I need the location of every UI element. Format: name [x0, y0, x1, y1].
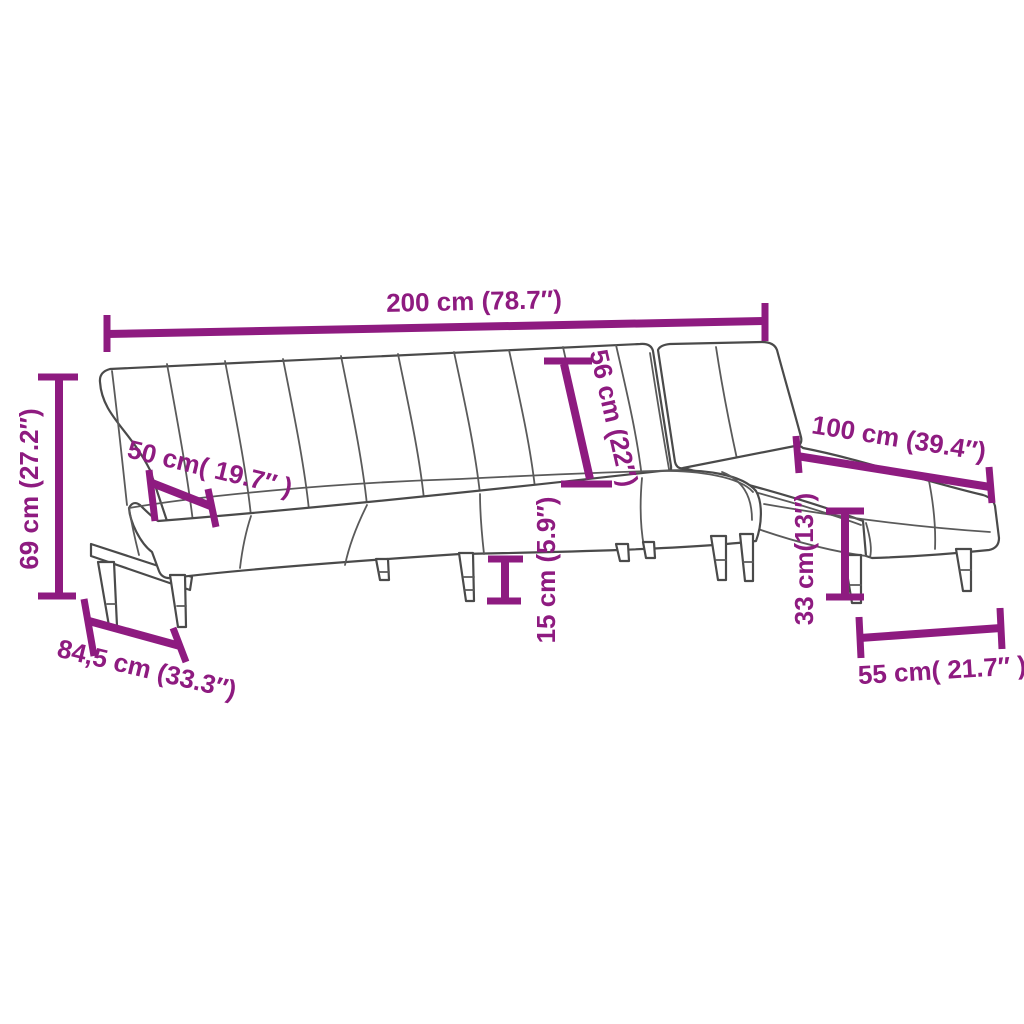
- leg: [711, 536, 726, 580]
- leg: [740, 534, 753, 581]
- dim-chaise-width-label: 55 cm( 21.7″ ): [857, 650, 1024, 690]
- dim-chaise-clearance-label: 33 cm(13″): [789, 493, 819, 625]
- leg: [616, 544, 629, 561]
- leg: [98, 562, 117, 626]
- dim-seat-clearance-label: 15 cm (5.9″): [531, 497, 561, 644]
- dimension-base-depth: 84,5 cm (33.3″): [55, 599, 240, 705]
- leg: [376, 559, 389, 580]
- dim-total-width-label: 200 cm (78.7″): [386, 284, 562, 318]
- dimension-total-width: 200 cm (78.7″): [107, 284, 765, 352]
- diagram-svg: 200 cm (78.7″) 69 cm (27.2″) 50 cm( 19.7…: [0, 0, 1024, 1024]
- product-dimension-diagram: 200 cm (78.7″) 69 cm (27.2″) 50 cm( 19.7…: [0, 0, 1024, 1024]
- dim-chaise-width-line: [860, 628, 1001, 638]
- dim-total-width-line: [107, 321, 765, 334]
- leg: [170, 575, 186, 627]
- dimension-total-height: 69 cm (27.2″): [14, 377, 78, 596]
- dimension-chaise-width: 55 cm( 21.7″ ): [857, 608, 1024, 690]
- dim-base-depth-label: 84,5 cm (33.3″): [55, 633, 240, 705]
- dim-total-height-label: 69 cm (27.2″): [14, 408, 44, 569]
- leg: [643, 542, 655, 558]
